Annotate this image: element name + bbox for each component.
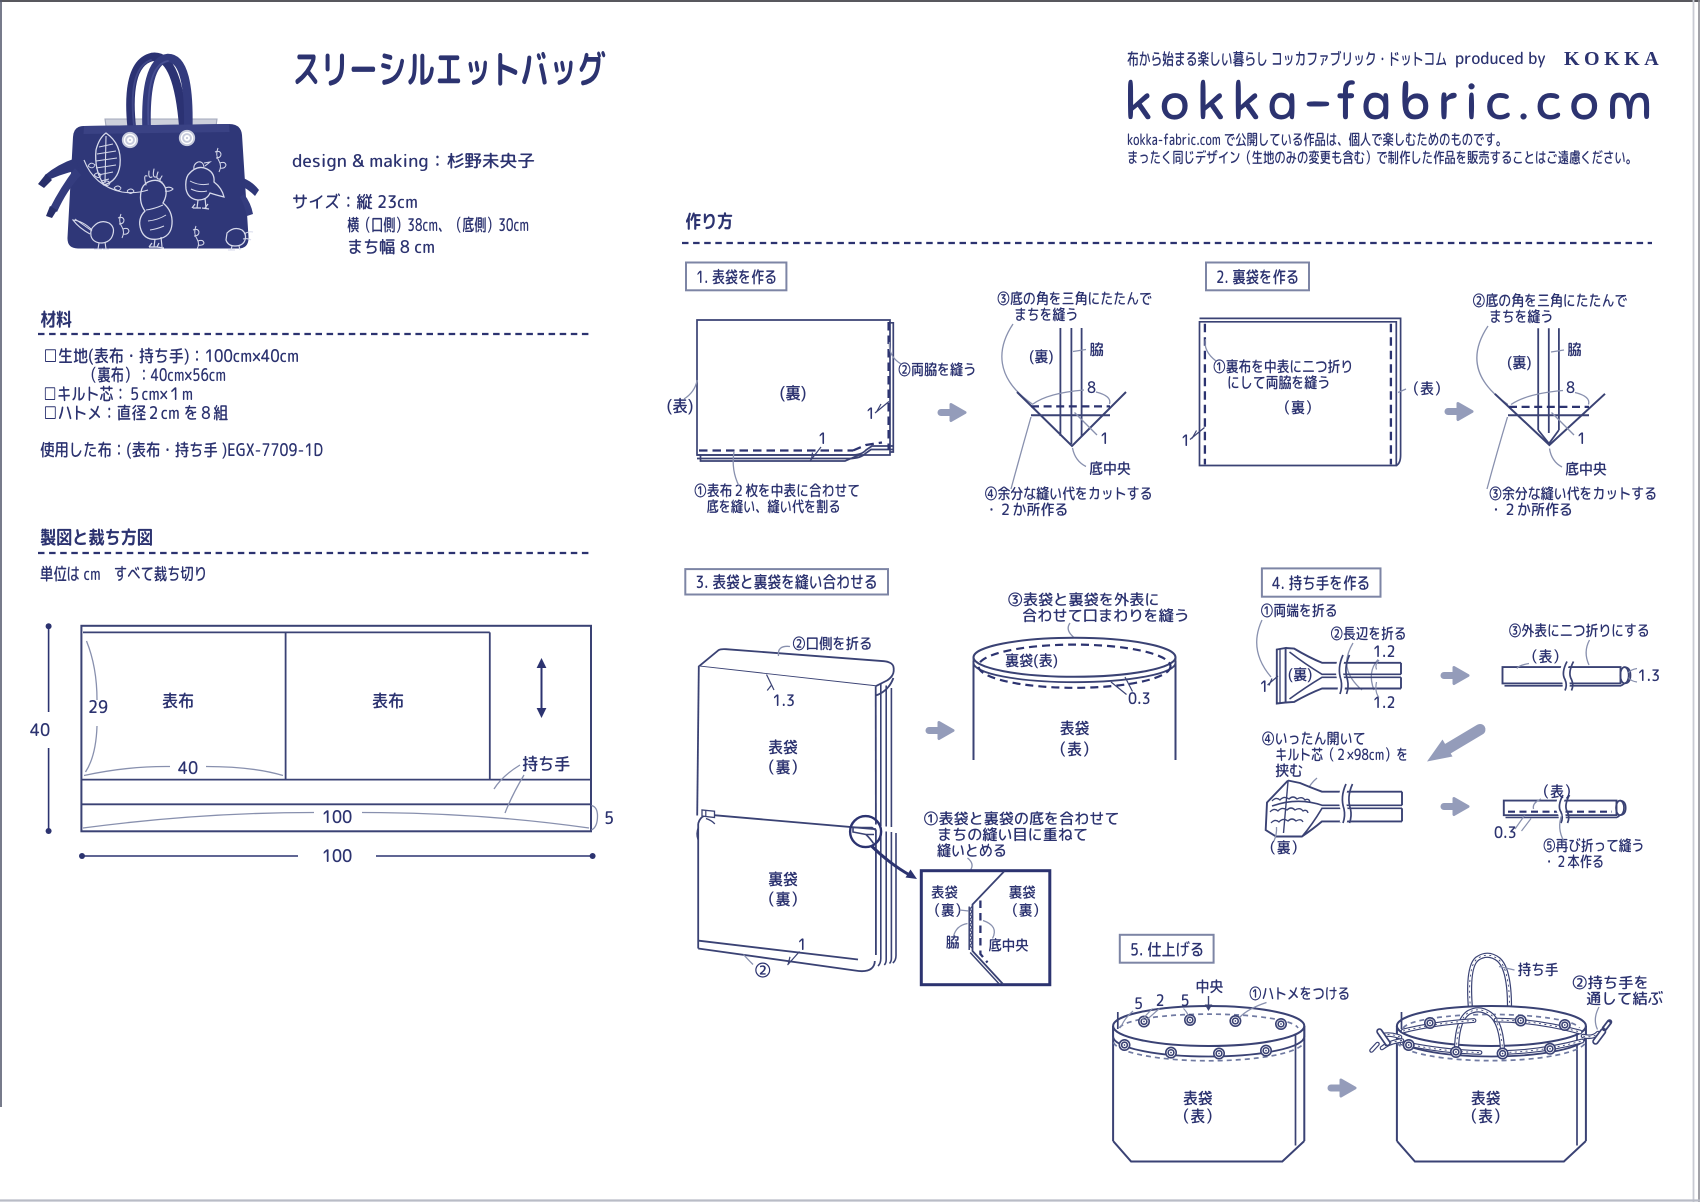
svg-text:KOKKA: KOKKA	[1564, 48, 1663, 70]
